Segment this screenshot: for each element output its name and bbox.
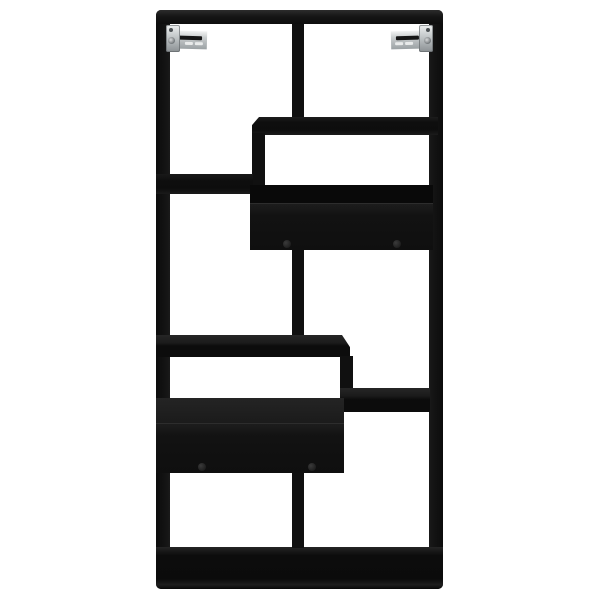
product-photo: Front view of a black rectangular wall s… [0, 0, 600, 600]
bracket-slot-icon [179, 36, 202, 41]
wall-shelf-unit [156, 10, 443, 589]
bracket-hole-icon [185, 42, 193, 45]
middle-center-divider [292, 250, 304, 336]
upper-left-shelf [156, 174, 253, 194]
frame-bottom-panel [156, 547, 443, 589]
bracket-rail-icon [391, 31, 420, 50]
bracket-hole-icon [395, 42, 403, 45]
top-center-divider [292, 24, 304, 118]
upper-drawer-knob-left [283, 240, 291, 248]
screw-icon [424, 37, 431, 44]
lower-drawer [156, 398, 344, 473]
screw-icon [168, 37, 175, 44]
upper-drawer-knob-right [393, 240, 401, 248]
frame-right-panel [429, 10, 443, 589]
frame-top-panel [156, 10, 443, 24]
bracket-rail-icon [178, 31, 207, 50]
screw-icon [169, 28, 173, 32]
bracket-hole-icon [405, 42, 413, 45]
lower-right-shelf [340, 388, 430, 412]
upper-drawer-front [250, 203, 433, 250]
lower-drawer-knob-right [308, 463, 316, 471]
upper-drawer [250, 185, 433, 250]
middle-step-divider [340, 356, 353, 390]
upper-shelf [252, 117, 438, 135]
bracket-slot-icon [396, 36, 419, 41]
upper-niche-left-wall [252, 133, 265, 188]
lower-drawer-knob-left [198, 463, 206, 471]
bracket-hole-icon [195, 42, 203, 45]
screw-icon [426, 28, 430, 32]
image-caption: Front view of a black rectangular wall s… [0, 0, 1, 1]
frame-left-panel [156, 10, 170, 589]
middle-left-shelf [156, 335, 350, 357]
bottom-center-divider [292, 473, 304, 548]
